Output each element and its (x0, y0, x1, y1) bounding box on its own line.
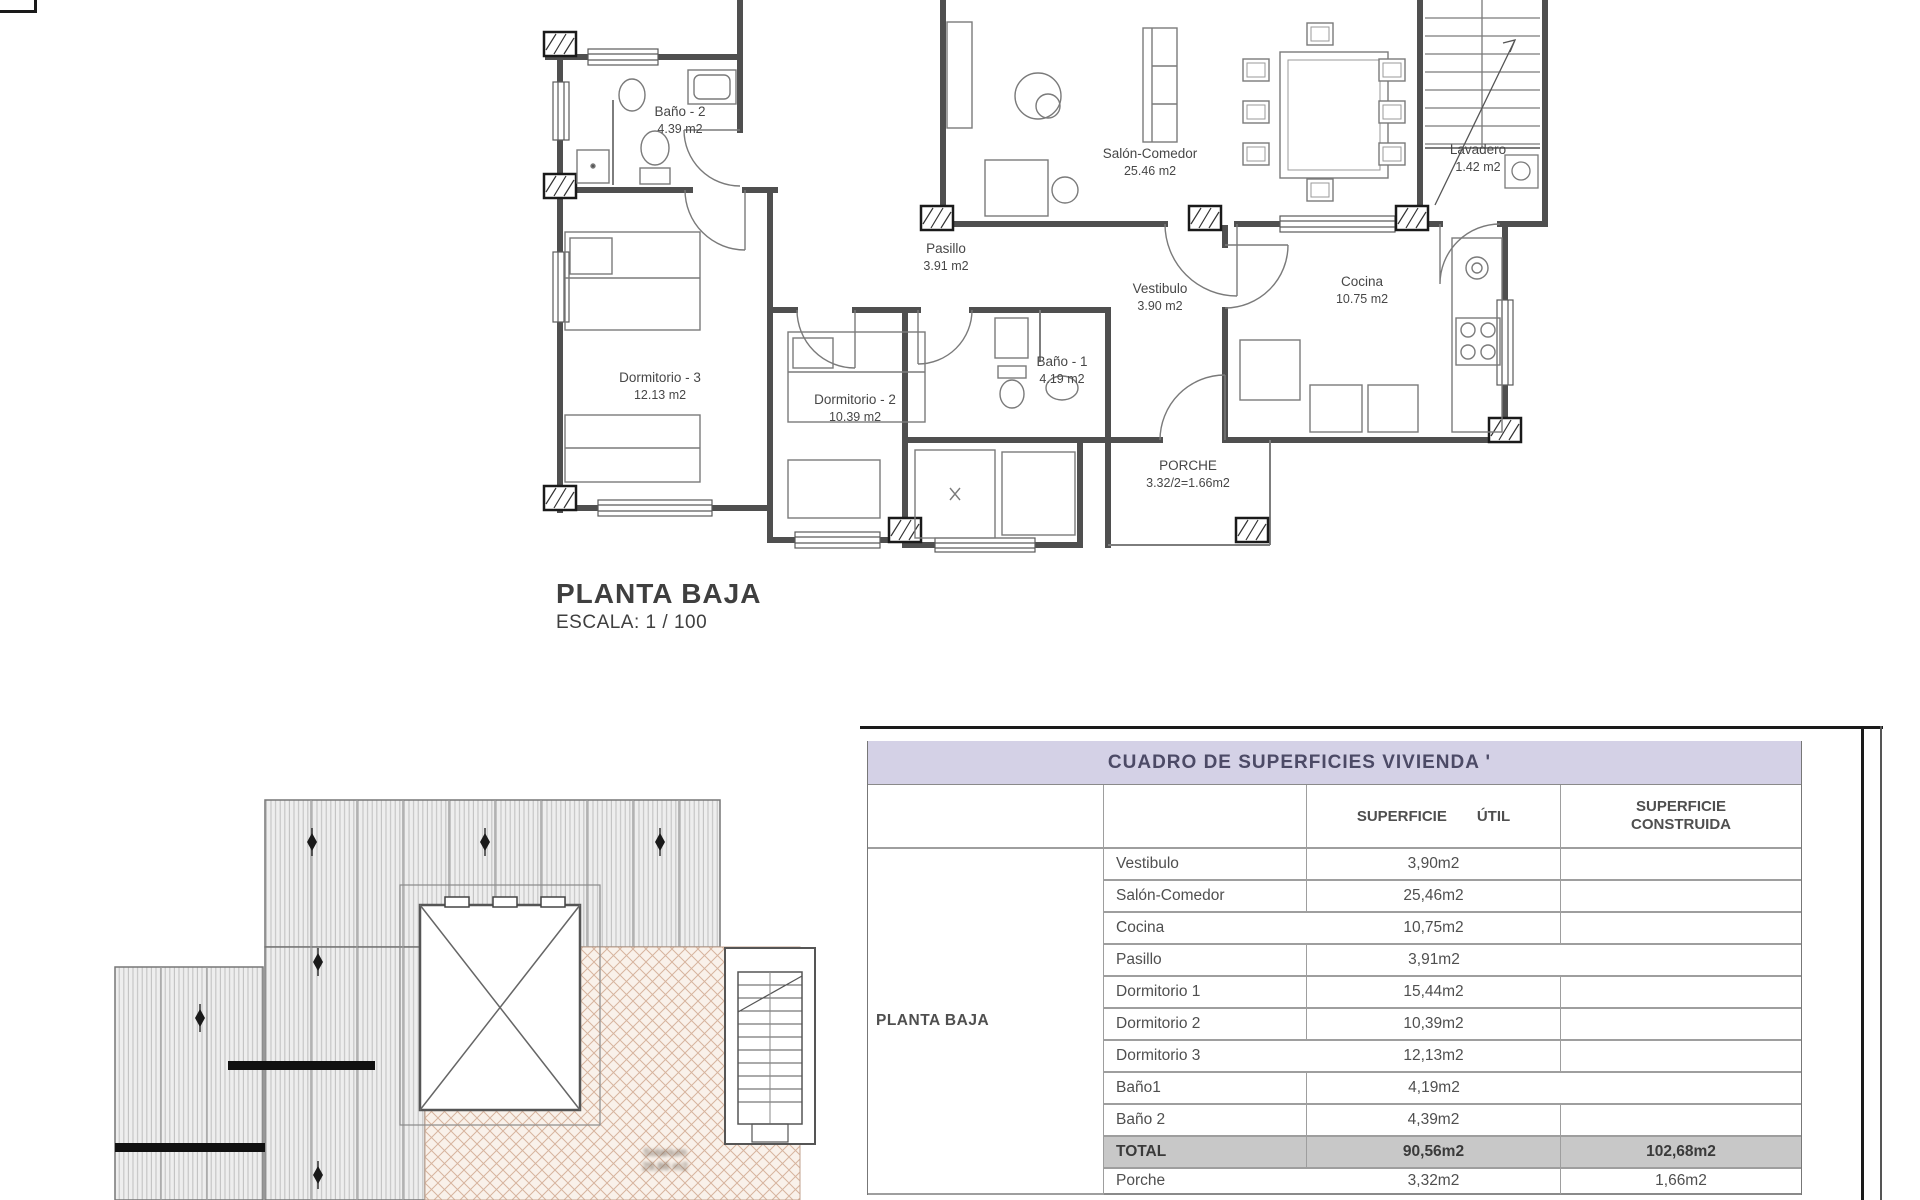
room-label: Dormitorio - 3 (619, 370, 701, 385)
table-cell-util: 90,56m2 (1307, 1137, 1561, 1169)
header-superficie-construida: SUPERFICIE CONSTRUIDA (1561, 785, 1801, 849)
table-cell-name: Dormitorio 3 (1104, 1041, 1307, 1073)
table-cell-name: Cocina (1104, 913, 1307, 945)
plan-title-block: PLANTA BAJA ESCALA: 1 / 100 (556, 578, 761, 634)
header-superficie-util: SUPERFICIE ÚTIL (1307, 785, 1561, 849)
table-cell-name: Salón-Comedor (1104, 881, 1307, 913)
table-cell-util: 3,90m2 (1307, 849, 1561, 881)
table-cell-util: 12,13m2 (1307, 1041, 1561, 1073)
roof-plan-drawing: Solarium 29,86 m2 (100, 780, 880, 1200)
row-group-label: PLANTA BAJA (868, 849, 1104, 1195)
table-cell-constr (1561, 945, 1801, 977)
frame-line-top (860, 726, 1883, 729)
room-area: 1.42 m2 (1455, 160, 1500, 174)
room-area: 12.13 m2 (634, 388, 686, 402)
dining-set (1243, 23, 1405, 201)
table-cell-util: 3,32m2 (1307, 1169, 1561, 1195)
roof-beam-bar (228, 1061, 375, 1070)
room-label: Pasillo (926, 241, 966, 256)
table-cell-util: 15,44m2 (1307, 977, 1561, 1009)
room-label: Salón-Comedor (1103, 146, 1198, 161)
table-cell-util: 25,46m2 (1307, 881, 1561, 913)
room-area: 25.46 m2 (1124, 164, 1176, 178)
table-cell-name: TOTAL (1104, 1137, 1307, 1169)
walls-thin (613, 100, 1540, 545)
terrace-label-line2: 29,86 m2 (642, 1161, 688, 1173)
table-cell-name: Baño1 (1104, 1073, 1307, 1105)
room-area: 10.39 m2 (829, 410, 881, 424)
room-label: Dormitorio - 2 (814, 392, 896, 407)
frame-line-right (1861, 726, 1864, 1200)
table-cell-name: Dormitorio 1 (1104, 977, 1307, 1009)
header-blank-1 (868, 785, 1104, 849)
roof-beam-bar (115, 1143, 265, 1152)
table-cell-constr (1561, 977, 1801, 1009)
table-cell-util: 3,91m2 (1307, 945, 1561, 977)
table-cell-name: Vestibulo (1104, 849, 1307, 881)
table-cell-constr: 1,66m2 (1561, 1169, 1801, 1195)
room-label: PORCHE (1159, 458, 1217, 473)
table-cell-constr: 102,68m2 (1561, 1137, 1801, 1169)
living-room-furniture (947, 22, 1177, 216)
room-area: 4.19 m2 (1039, 372, 1084, 386)
table-cell-util: 4,39m2 (1307, 1105, 1561, 1137)
architectural-sheet: { "sheet": { "plan_title": "PLANTA BAJA"… (0, 0, 1920, 1200)
surfaces-grid: SUPERFICIE ÚTIL SUPERFICIE CONSTRUIDA PL… (868, 785, 1801, 1195)
plan-scale: ESCALA: 1 / 100 (556, 612, 761, 634)
room-area: 10.75 m2 (1336, 292, 1388, 306)
floor-plan-drawing: Baño - 24.39 m2Salón-Comedor25.46 m2Lava… (0, 0, 1920, 630)
table-cell-name: Baño 2 (1104, 1105, 1307, 1137)
table-cell-util: 4,19m2 (1307, 1073, 1561, 1105)
table-cell-name: Pasillo (1104, 945, 1307, 977)
room-label: Vestibulo (1133, 281, 1188, 296)
kitchen-fixtures (1240, 238, 1502, 432)
table-cell-constr (1561, 913, 1801, 945)
table-cell-name: Porche (1104, 1169, 1307, 1195)
room-label: Cocina (1341, 274, 1384, 289)
plan-title: PLANTA BAJA (556, 578, 761, 610)
room-area: 3.91 m2 (923, 259, 968, 273)
table-cell-constr (1561, 1009, 1801, 1041)
table-cell-util: 10,75m2 (1307, 913, 1561, 945)
bath1-fixtures (915, 318, 1078, 538)
roof-skylight (420, 897, 580, 1110)
table-cell-constr (1561, 1073, 1801, 1105)
terrace-label-line1: Solarium (643, 1147, 686, 1159)
roof-stairs (725, 948, 815, 1144)
walls (548, 0, 1545, 545)
room-area: 3.32/2=1.66m2 (1146, 476, 1230, 490)
table-cell-constr (1561, 881, 1801, 913)
table-cell-util: 10,39m2 (1307, 1009, 1561, 1041)
stairs (1425, 0, 1540, 205)
table-cell-constr (1561, 849, 1801, 881)
frame-line-right-inner (1880, 726, 1882, 1200)
room-label: Baño - 1 (1036, 354, 1087, 369)
room-area: 3.90 m2 (1137, 299, 1182, 313)
room-area: 4.39 m2 (657, 122, 702, 136)
header-blank-2 (1104, 785, 1307, 849)
table-cell-constr (1561, 1041, 1801, 1073)
table-cell-constr (1561, 1105, 1801, 1137)
surfaces-table-title: CUADRO DE SUPERFICIES VIVIENDA ' (868, 741, 1801, 785)
room-label: Lavadero (1450, 142, 1506, 157)
room-label: Baño - 2 (654, 104, 705, 119)
surfaces-table: CUADRO DE SUPERFICIES VIVIENDA ' SUPERFI… (867, 741, 1802, 1195)
table-cell-name: Dormitorio 2 (1104, 1009, 1307, 1041)
